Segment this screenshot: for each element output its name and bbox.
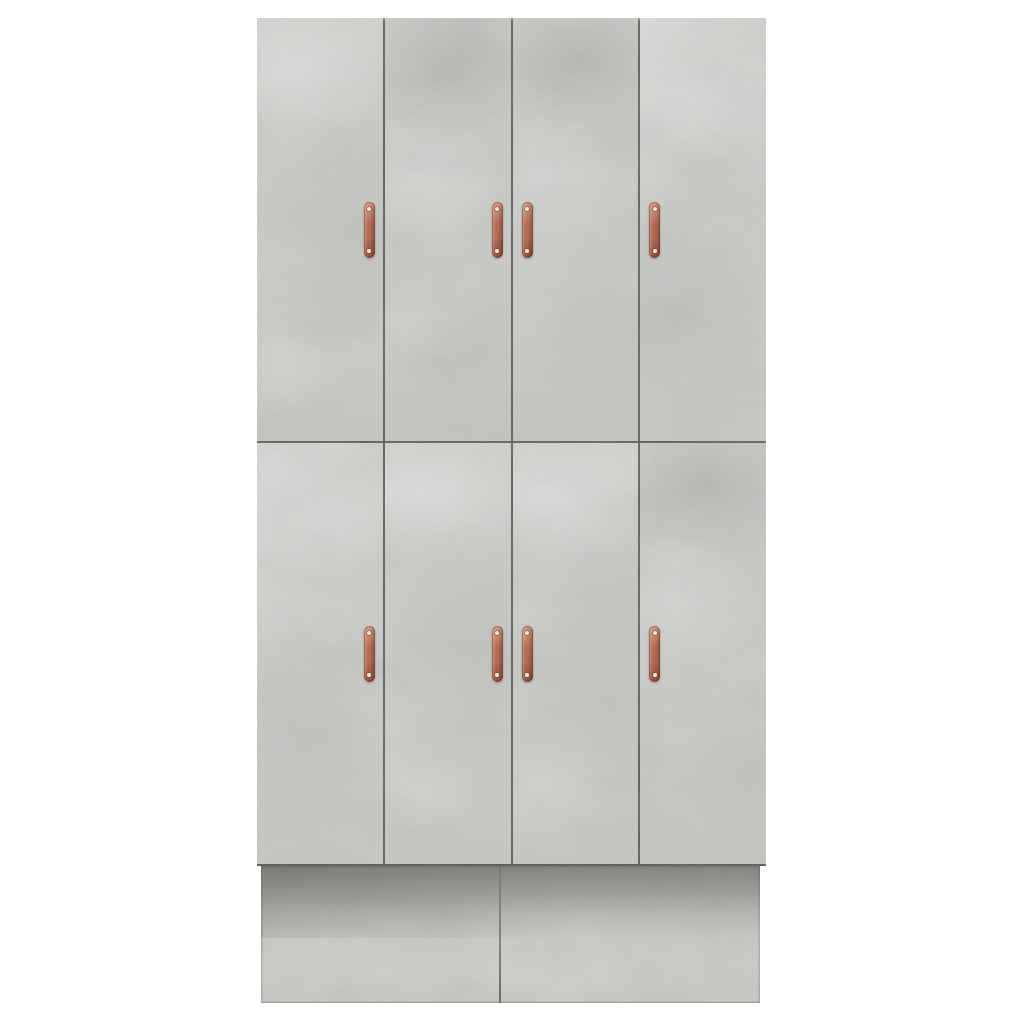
product-photo xyxy=(0,0,1024,1024)
plinth-texture-overlay xyxy=(261,866,760,1003)
wardrobe-door-bottom-3 xyxy=(513,443,639,864)
copper-door-handle xyxy=(522,626,533,682)
copper-door-handle xyxy=(364,626,375,682)
wardrobe xyxy=(257,18,766,1003)
base-plinth xyxy=(261,866,760,1003)
wardrobe-door-top-4 xyxy=(640,18,766,441)
copper-door-handle xyxy=(649,202,660,258)
door-overhang-shadow xyxy=(261,866,760,938)
wardrobe-doors xyxy=(257,18,766,866)
copper-door-handle xyxy=(649,626,660,682)
copper-door-handle xyxy=(492,202,503,258)
wardrobe-door-top-2 xyxy=(385,18,511,441)
wardrobe-door-bottom-1 xyxy=(257,443,383,864)
copper-door-handle xyxy=(522,202,533,258)
wardrobe-door-top-1 xyxy=(257,18,383,441)
plinth-center-seam xyxy=(499,866,501,1003)
wardrobe-door-bottom-2 xyxy=(385,443,511,864)
copper-door-handle xyxy=(492,626,503,682)
copper-door-handle xyxy=(364,202,375,258)
wardrobe-door-top-3 xyxy=(513,18,639,441)
wardrobe-door-bottom-4 xyxy=(640,443,766,864)
